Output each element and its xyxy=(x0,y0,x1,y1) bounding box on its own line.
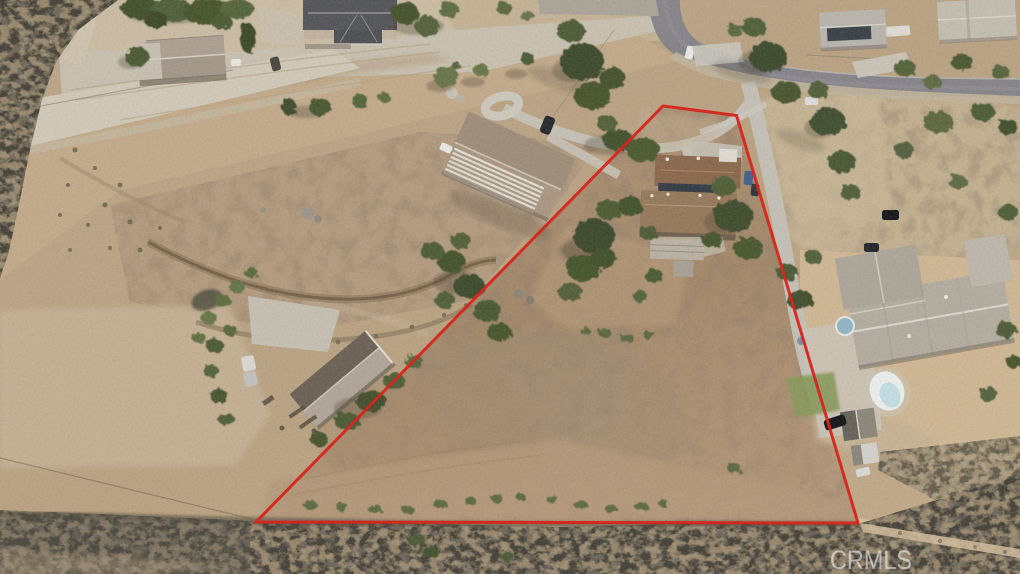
svg-text:CRMLS: CRMLS xyxy=(830,545,912,574)
